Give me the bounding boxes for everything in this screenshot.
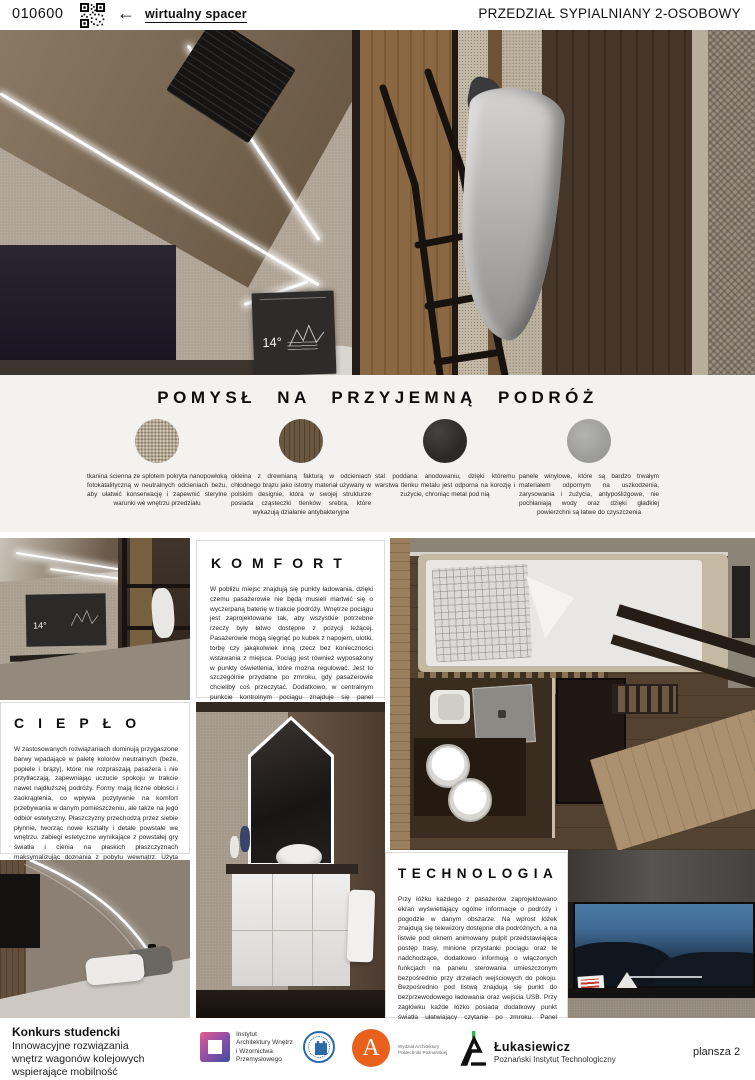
- vinyl-swatch-circle: [567, 419, 611, 463]
- qr-code-icon: [80, 3, 105, 28]
- architecture-faculty-logo: A: [352, 1029, 390, 1067]
- fabric-swatch-circle: [135, 419, 179, 463]
- institute-logo-inner: [208, 1040, 222, 1054]
- weather-graph: [289, 319, 330, 352]
- swatch-fabric: tkanina ścienna ze splotem pokryta nanop…: [85, 419, 229, 517]
- cabinet-seam: [232, 930, 350, 931]
- wall-band: [410, 538, 755, 552]
- ceiling-band: [196, 702, 385, 712]
- footer: Konkurs studencki Innowacyjne rozwiązani…: [0, 1020, 755, 1080]
- temperature-readout: 14°: [262, 334, 282, 350]
- steel-swatch-description: stal poddana anodowaniu, dzięki któremu …: [375, 472, 515, 499]
- wall-frame-strip: [352, 30, 360, 375]
- dark-wood-panel: [542, 30, 692, 375]
- shelf-ledge: [568, 988, 755, 998]
- wall-tv: [732, 566, 750, 638]
- architecture-faculty-label: Wydział Architektury Politechniki Poznań…: [398, 1044, 447, 1057]
- patterned-fabric-stripe: [708, 30, 755, 375]
- checkered-blanket: [432, 564, 533, 663]
- materials-section: POMYSŁ NA PRZYJEMNĄ PODRÓŻ tkanina ścien…: [0, 375, 755, 532]
- lukasiewicz-subtitle: Poznański Instytut Technologiczny: [494, 1055, 616, 1064]
- steel-swatch-circle: [423, 419, 467, 463]
- architecture-faculty-initial: A: [362, 1036, 379, 1060]
- hanging-towel: [347, 890, 375, 963]
- ladder-top-view: [612, 684, 678, 714]
- swatch-wood: okleina z drewnianą fakturą w odcieniach…: [229, 419, 373, 517]
- komfort-section: KOMFORT W pobliżu miejsc znajdują się pu…: [196, 540, 385, 698]
- info-screen: 14°: [26, 593, 107, 646]
- cieplo-section: CIEPŁO W zastosowanych rozwiązaniach dom…: [0, 702, 190, 854]
- bunk-view-render-image: 14°: [0, 538, 190, 700]
- info-screen: 14°: [252, 291, 337, 375]
- temperature-readout: 14°: [33, 620, 47, 630]
- vase: [240, 826, 250, 852]
- shower-drain: [498, 710, 506, 718]
- mirror-glass: [251, 720, 331, 863]
- tv-screen: [575, 904, 753, 986]
- fabric-band: [568, 998, 755, 1018]
- hero-render-image: 14°: [0, 30, 755, 375]
- lukasiewicz-logo-mark: [458, 1031, 490, 1067]
- wood-swatch-circle: [279, 419, 323, 463]
- bed-render-image: [0, 860, 190, 1018]
- vase: [230, 836, 239, 858]
- materials-title: POMYSŁ NA PRZYJEMNĄ PODRÓŻ: [0, 388, 755, 408]
- round-sink: [448, 778, 492, 822]
- fabric-stripe: [692, 30, 708, 375]
- swatch-row: tkanina ścienna ze splotem pokryta nanop…: [85, 419, 670, 517]
- virtual-tour-link[interactable]: wirtualny spacer: [145, 7, 247, 23]
- institute-logo: [200, 1032, 230, 1062]
- poster-title: PRZEDZIAŁ SYPIALNIANY 2-OSOBOWY: [478, 6, 741, 21]
- entry-code: 010600: [12, 6, 63, 22]
- politechnika-poznanska-seal-logo: [303, 1031, 335, 1063]
- floor-plan-render-image: [390, 538, 755, 850]
- arrow-left-icon: ←: [117, 3, 135, 24]
- technologia-section: TECHNOLOGIA Przy łóżku każdego z pasażer…: [385, 852, 568, 1018]
- bathroom-render-image: [196, 702, 385, 1018]
- content-grid: 14° KOMFORT W pobliżu miejsc znajdują si…: [0, 532, 755, 1020]
- page-label: plansza 2: [693, 1046, 740, 1058]
- shelf: [122, 584, 190, 588]
- swatch-steel: stal poddana anodowaniu, dzięki któremu …: [373, 419, 517, 517]
- header-bar: 010600 ← wirtualny spacer PRZEDZ: [0, 0, 755, 30]
- technologia-title: TECHNOLOGIA: [398, 866, 558, 881]
- lukasiewicz-name: Łukasiewicz: [494, 1040, 570, 1054]
- dark-wall: [568, 850, 755, 902]
- swatch-vinyl: panele winylowe, które są bardzo trwałym…: [517, 419, 661, 517]
- wood-swatch-description: okleina z drewnianą fakturą w odcieniach…: [231, 472, 371, 517]
- institute-label: Instytut Architektury Wnętrz i Wzornictw…: [236, 1031, 293, 1065]
- tv-render-image: [568, 850, 755, 1018]
- bathroom-wall: [552, 678, 555, 838]
- vinyl-swatch-description: panele winylowe, które są bardzo trwałym…: [519, 472, 659, 517]
- toilet-seat: [438, 694, 464, 720]
- floor-shadow: [196, 990, 385, 1018]
- komfort-title: KOMFORT: [211, 555, 352, 571]
- screen-detail: [260, 297, 326, 300]
- wood-door-panel: [360, 30, 452, 375]
- weather-graph: [71, 605, 101, 632]
- light-wood-strip: [390, 538, 410, 850]
- competition-heading: Konkurs studencki: [12, 1025, 120, 1039]
- window-shadow: [0, 245, 176, 375]
- competition-description: Innowacyjne rozwiązania wnętrz wagonów k…: [12, 1040, 144, 1080]
- fabric-swatch-description: tkanina ścienna ze splotem pokryta nanop…: [87, 472, 227, 508]
- vanity-counter: [226, 864, 358, 874]
- progress-bar: [630, 976, 702, 978]
- cieplo-title: CIEPŁO: [14, 715, 150, 731]
- poster-board: 010600 ← wirtualny spacer PRZEDZ: [0, 0, 755, 1080]
